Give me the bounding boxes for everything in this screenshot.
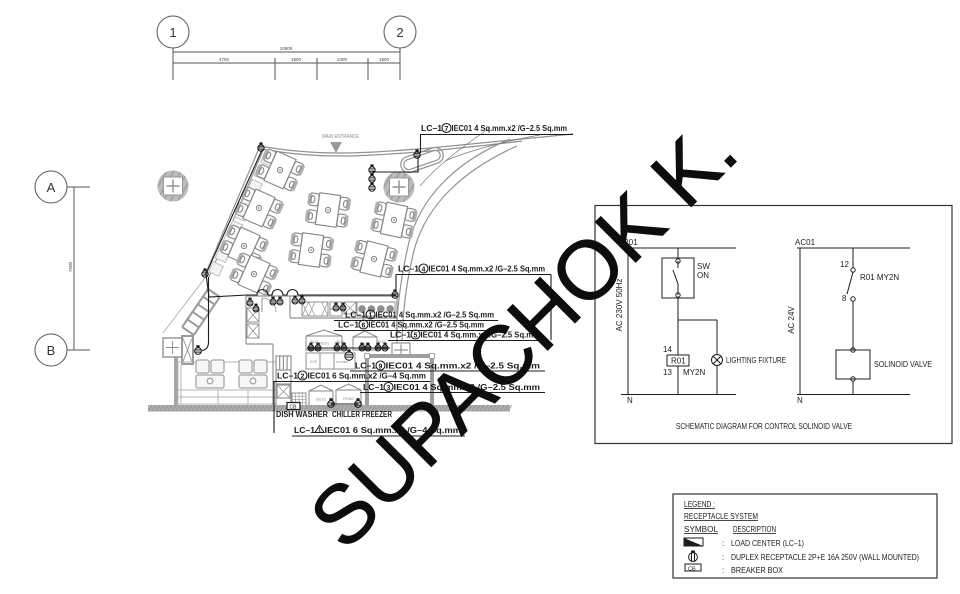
svg-text:LC–1: LC–1	[345, 310, 366, 320]
svg-text:DUPLEX RECEPTACLE 2P+E 16A 250: DUPLEX RECEPTACLE 2P+E 16A 250V (WALL MO…	[731, 553, 919, 562]
svg-text:3: 3	[387, 385, 391, 392]
svg-text:4: 4	[422, 266, 426, 273]
svg-text::: :	[722, 553, 724, 562]
svg-text:LC–1: LC–1	[294, 425, 315, 435]
svg-text:MY2N: MY2N	[683, 368, 705, 377]
svg-text:IEC01 4 Sq.mm.x2 /G–2.5 Sq.mm: IEC01 4 Sq.mm.x2 /G–2.5 Sq.mm	[452, 123, 568, 133]
svg-text:5: 5	[414, 332, 418, 339]
svg-text:N: N	[797, 396, 803, 405]
svg-text:9: 9	[379, 363, 383, 370]
svg-text:LC–1: LC–1	[363, 382, 384, 392]
svg-text:DESCRIPTION: DESCRIPTION	[733, 525, 776, 534]
svg-text:13: 13	[663, 368, 672, 377]
svg-text:4750: 4750	[219, 57, 230, 62]
svg-text:1: 1	[318, 428, 321, 434]
svg-text:AC 24V: AC 24V	[787, 306, 796, 334]
svg-text:ON: ON	[697, 271, 709, 280]
svg-text:LC–1: LC–1	[421, 123, 442, 133]
svg-text:10800: 10800	[280, 46, 293, 51]
svg-text:SCHEMATIC DIAGRAM FOR CONTROL: SCHEMATIC DIAGRAM FOR CONTROL SOLINOID V…	[676, 421, 852, 431]
svg-text:1800: 1800	[379, 57, 390, 62]
svg-text:LC–1: LC–1	[390, 330, 411, 340]
svg-text:SYMBOL: SYMBOL	[684, 525, 719, 534]
svg-text:LOAD CENTER (LC–1): LOAD CENTER (LC–1)	[731, 539, 804, 548]
svg-text:FRIDG: FRIDG	[343, 397, 354, 401]
svg-text:R01 MY2N: R01 MY2N	[860, 273, 899, 282]
svg-text:7: 7	[445, 126, 449, 133]
svg-text:DISH WASHER: DISH WASHER	[276, 409, 329, 419]
svg-text:7500: 7500	[68, 261, 73, 272]
svg-text:no water: no water	[336, 360, 349, 364]
svg-text:RECEPTACLE SYSTEM: RECEPTACLE SYSTEM	[684, 512, 758, 521]
svg-text:CB: CB	[688, 567, 696, 573]
svg-text::: :	[722, 539, 724, 548]
svg-text::: :	[722, 566, 724, 575]
svg-text:8: 8	[842, 294, 847, 303]
svg-text:N: N	[627, 396, 633, 405]
svg-text:2: 2	[396, 25, 403, 40]
svg-text:LIGHTING FIXTURE: LIGHTING FIXTURE	[726, 356, 786, 365]
svg-text:LC–1: LC–1	[338, 320, 359, 330]
svg-text:ESP: ESP	[310, 360, 318, 364]
svg-text:2: 2	[301, 373, 305, 380]
svg-text:R01: R01	[671, 357, 686, 366]
svg-text:BREAKER BOX: BREAKER BOX	[731, 566, 784, 575]
svg-text:12: 12	[840, 260, 849, 269]
svg-text:AC01: AC01	[795, 238, 816, 247]
svg-text:2400: 2400	[337, 57, 348, 62]
svg-text:SOLINOID VALVE: SOLINOID VALVE	[874, 360, 932, 369]
svg-text:1: 1	[369, 312, 373, 319]
svg-text:6: 6	[362, 322, 366, 329]
svg-text:14: 14	[663, 345, 672, 354]
svg-text:1800: 1800	[291, 57, 302, 62]
svg-text:(BLD): (BLD)	[319, 342, 328, 346]
svg-text:IEC01 6 Sq.mm.x2 /G–4 Sq.mm: IEC01 6 Sq.mm.x2 /G–4 Sq.mm	[308, 371, 427, 381]
svg-text:LC–1: LC–1	[398, 264, 419, 274]
svg-text:LC–1: LC–1	[277, 371, 298, 381]
svg-text:LEGEND :: LEGEND :	[684, 500, 715, 509]
svg-text:A: A	[47, 180, 56, 195]
svg-text:1: 1	[169, 25, 176, 40]
svg-text:SW: SW	[697, 262, 710, 271]
svg-text:B: B	[47, 343, 56, 358]
svg-text:LC–1: LC–1	[355, 361, 376, 371]
svg-text:MAIN ENTRANCE: MAIN ENTRANCE	[322, 134, 359, 140]
svg-text:(BLD): (BLD)	[316, 398, 325, 402]
